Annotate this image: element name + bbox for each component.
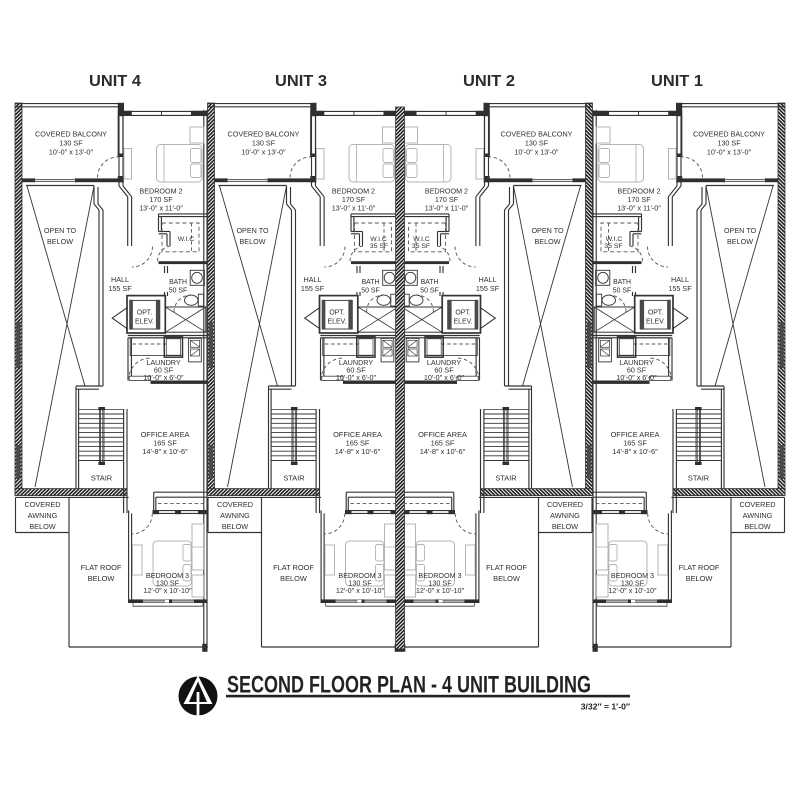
svg-text:12′-0″ x 10′-10″: 12′-0″ x 10′-10″: [143, 586, 192, 595]
svg-text:COVERED: COVERED: [217, 500, 253, 509]
svg-text:35 SF: 35 SF: [604, 243, 622, 250]
svg-text:10′-0″ x 6′-0″: 10′-0″ x 6′-0″: [424, 373, 465, 382]
svg-text:AWNING: AWNING: [28, 511, 58, 520]
svg-text:155 SF: 155 SF: [108, 284, 132, 293]
svg-text:BELOW: BELOW: [280, 574, 307, 583]
svg-text:COVERED BALCONY: COVERED BALCONY: [501, 130, 573, 139]
svg-text:BATH: BATH: [613, 279, 631, 286]
svg-text:OPT.: OPT.: [329, 310, 344, 317]
svg-text:130 SF: 130 SF: [252, 139, 276, 148]
svg-text:UNIT 4: UNIT 4: [89, 73, 141, 90]
svg-text:STAIR: STAIR: [495, 474, 516, 483]
svg-text:ELEV.: ELEV.: [135, 319, 154, 326]
svg-text:HALL: HALL: [671, 275, 689, 284]
svg-text:FLAT ROOF: FLAT ROOF: [81, 563, 122, 572]
svg-text:UNIT 2: UNIT 2: [463, 73, 515, 90]
svg-text:13′-0″ x 11′-0″: 13′-0″ x 11′-0″: [617, 204, 661, 213]
svg-text:HALL: HALL: [304, 275, 322, 284]
svg-text:ELEV.: ELEV.: [328, 319, 347, 326]
svg-text:STAIR: STAIR: [688, 474, 709, 483]
svg-text:10′-0″ x 6′-0″: 10′-0″ x 6′-0″: [143, 373, 184, 382]
svg-text:130 SF: 130 SF: [525, 139, 549, 148]
svg-text:50 SF: 50 SF: [361, 288, 379, 295]
svg-text:ELEV.: ELEV.: [454, 319, 473, 326]
svg-text:35 SF: 35 SF: [412, 243, 430, 250]
svg-text:STAIR: STAIR: [91, 474, 112, 483]
svg-text:COVERED BALCONY: COVERED BALCONY: [693, 130, 765, 139]
svg-text:BELOW: BELOW: [535, 237, 561, 246]
svg-text:10′-0″ x 13′-0″: 10′-0″ x 13′-0″: [707, 148, 752, 157]
svg-text:14′-8″ x 10′-6″: 14′-8″ x 10′-6″: [142, 447, 188, 456]
svg-text:BELOW: BELOW: [222, 522, 248, 531]
svg-text:OPT.: OPT.: [455, 310, 470, 317]
svg-text:BELOW: BELOW: [744, 522, 770, 531]
svg-text:OPEN TO: OPEN TO: [724, 226, 756, 235]
svg-text:BATH: BATH: [169, 279, 187, 286]
svg-text:130 SF: 130 SF: [717, 139, 741, 148]
svg-text:155 SF: 155 SF: [476, 284, 500, 293]
svg-text:COVERED: COVERED: [739, 500, 775, 509]
svg-text:BELOW: BELOW: [47, 237, 73, 246]
svg-text:W.I.C: W.I.C: [370, 236, 387, 243]
svg-text:UNIT 3: UNIT 3: [275, 73, 327, 90]
svg-text:AWNING: AWNING: [550, 511, 580, 520]
svg-text:STAIR: STAIR: [283, 474, 304, 483]
svg-text:AWNING: AWNING: [743, 511, 773, 520]
svg-text:50 SF: 50 SF: [613, 288, 631, 295]
svg-text:COVERED BALCONY: COVERED BALCONY: [35, 130, 107, 139]
svg-text:12′-0″ x 10′-10″: 12′-0″ x 10′-10″: [416, 586, 465, 595]
svg-text:50 SF: 50 SF: [420, 288, 438, 295]
svg-text:35 SF: 35 SF: [370, 243, 388, 250]
svg-text:COVERED: COVERED: [24, 500, 60, 509]
svg-text:BELOW: BELOW: [727, 237, 753, 246]
svg-text:50 SF: 50 SF: [169, 288, 187, 295]
svg-text:HALL: HALL: [111, 275, 129, 284]
svg-text:13′-0″ x 11′-0″: 13′-0″ x 11′-0″: [425, 204, 469, 213]
svg-text:HALL: HALL: [479, 275, 497, 284]
svg-text:W.I.C: W.I.C: [606, 236, 623, 243]
svg-text:13′-0″ x 11′-0″: 13′-0″ x 11′-0″: [332, 204, 376, 213]
svg-text:BATH: BATH: [421, 279, 439, 286]
svg-text:14′-8″ x 10′-6″: 14′-8″ x 10′-6″: [335, 447, 381, 456]
svg-text:SECOND FLOOR PLAN - 4 UNIT BUI: SECOND FLOOR PLAN - 4 UNIT BUILDING: [227, 672, 591, 699]
svg-text:FLAT ROOF: FLAT ROOF: [486, 563, 527, 572]
svg-text:OPT.: OPT.: [137, 310, 152, 317]
svg-text:155 SF: 155 SF: [301, 284, 325, 293]
svg-text:OPEN TO: OPEN TO: [236, 226, 268, 235]
svg-text:COVERED: COVERED: [547, 500, 583, 509]
svg-text:12′-0″ x 10′-10″: 12′-0″ x 10′-10″: [608, 586, 657, 595]
svg-text:BELOW: BELOW: [88, 574, 115, 583]
svg-text:OPEN TO: OPEN TO: [531, 226, 563, 235]
svg-text:BELOW: BELOW: [493, 574, 520, 583]
svg-text:W.I.C: W.I.C: [413, 236, 430, 243]
svg-text:BATH: BATH: [362, 279, 380, 286]
svg-text:FLAT ROOF: FLAT ROOF: [679, 563, 720, 572]
svg-text:10′-0″ x 13′-0″: 10′-0″ x 13′-0″: [514, 148, 559, 157]
svg-text:UNIT 1: UNIT 1: [651, 73, 703, 90]
svg-text:AWNING: AWNING: [220, 511, 250, 520]
svg-text:OPT.: OPT.: [648, 310, 663, 317]
svg-text:155 SF: 155 SF: [668, 284, 692, 293]
svg-text:10′-0″ x 6′-0″: 10′-0″ x 6′-0″: [616, 373, 657, 382]
svg-text:13′-0″ x 11′-0″: 13′-0″ x 11′-0″: [139, 204, 183, 213]
svg-text:BELOW: BELOW: [686, 574, 713, 583]
svg-text:FLAT ROOF: FLAT ROOF: [273, 563, 314, 572]
svg-text:COVERED BALCONY: COVERED BALCONY: [228, 130, 300, 139]
svg-text:BELOW: BELOW: [29, 522, 55, 531]
svg-text:130 SF: 130 SF: [59, 139, 83, 148]
svg-text:14′-8″ x 10′-6″: 14′-8″ x 10′-6″: [612, 447, 658, 456]
svg-text:10′-0″ x 6′-0″: 10′-0″ x 6′-0″: [336, 373, 377, 382]
svg-text:14′-8″ x 10′-6″: 14′-8″ x 10′-6″: [420, 447, 466, 456]
svg-text:BELOW: BELOW: [240, 237, 266, 246]
svg-text:10′-0″ x 13′-0″: 10′-0″ x 13′-0″: [241, 148, 286, 157]
svg-text:ELEV.: ELEV.: [646, 319, 665, 326]
svg-text:10′-0″ x 13′-0″: 10′-0″ x 13′-0″: [49, 148, 94, 157]
svg-text:BELOW: BELOW: [552, 522, 578, 531]
svg-text:12′-0″ x 10′-10″: 12′-0″ x 10′-10″: [336, 586, 385, 595]
svg-text:W.I.C: W.I.C: [178, 236, 195, 243]
svg-text:3/32″ = 1′-0″: 3/32″ = 1′-0″: [581, 702, 630, 712]
svg-text:OPEN TO: OPEN TO: [44, 226, 76, 235]
